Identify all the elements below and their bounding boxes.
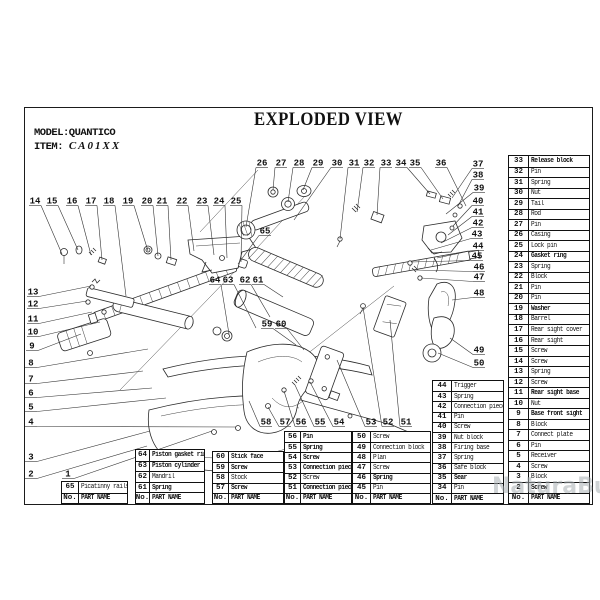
table-row: 7Connect plate — [509, 429, 589, 440]
table-row: 51Connection piece — [285, 483, 351, 493]
part-name: Piston gasket ring — [150, 451, 204, 459]
part-name: Stick face — [229, 453, 283, 461]
part-number: 15 — [509, 346, 529, 356]
table-row: 10Nut — [509, 398, 589, 409]
part-name: Screw — [301, 454, 351, 462]
table-row: 52Screw — [285, 473, 351, 483]
table-row: 49Connection block — [353, 442, 430, 452]
part-number: 42 — [433, 402, 452, 411]
table-footer-row: No.PART NAME — [285, 493, 351, 503]
part-number: 13 — [509, 367, 529, 377]
part-number: No. — [285, 494, 301, 503]
part-name: Trigger — [452, 382, 503, 390]
part-name: Pin — [529, 221, 589, 229]
part-number: 59 — [213, 463, 229, 472]
part-number: 46 — [353, 474, 371, 483]
table-row: 38Firing base — [433, 442, 503, 452]
part-number: No. — [433, 494, 452, 503]
part-number: 62 — [136, 472, 150, 482]
part-name: Connection block — [371, 444, 430, 452]
part-number: 45 — [353, 484, 371, 493]
part-name: Stock — [229, 474, 283, 482]
parts-tables: 65Picatinny railsNo.PART NAME64Piston ga… — [0, 0, 600, 600]
part-number: 44 — [433, 381, 452, 391]
part-name: Spring — [371, 474, 430, 482]
part-name: Barrel — [529, 315, 589, 323]
part-name: Connection piece — [452, 403, 503, 411]
part-name: Rear sight cover — [529, 326, 589, 334]
part-name: Plan — [371, 454, 430, 462]
part-name: Spring — [150, 484, 204, 492]
table-row: 41Pin — [433, 412, 503, 422]
part-name: Screw — [371, 433, 430, 441]
part-name: Rear sight — [529, 337, 589, 345]
table-row: 63Piston cylinder — [136, 461, 204, 472]
part-number: 6 — [509, 441, 529, 451]
part-number: 33 — [509, 156, 529, 167]
table-row: 57Screw — [213, 483, 283, 493]
table-row: 58Stock — [213, 472, 283, 482]
table-row: 22Block — [509, 272, 589, 283]
part-number: 4 — [509, 462, 529, 472]
part-number: 5 — [509, 451, 529, 461]
table-row: 23Spring — [509, 261, 589, 272]
part-number: 22 — [509, 273, 529, 283]
part-number: 28 — [509, 210, 529, 220]
part-number: 61 — [136, 483, 150, 493]
part-number: 20 — [509, 294, 529, 304]
part-name: Firing base — [452, 444, 503, 452]
table-row: 45Pin — [353, 483, 430, 493]
part-name: Pin — [452, 413, 503, 421]
part-name: Safe block — [452, 464, 503, 472]
parts-table-t65: 65Picatinny railsNo.PART NAME — [61, 481, 128, 504]
part-number: No. — [62, 494, 79, 504]
part-number: 23 — [509, 262, 529, 272]
part-name: Rear sight base — [529, 389, 589, 397]
part-number: 57 — [213, 484, 229, 493]
part-number: 7 — [509, 430, 529, 440]
part-name: Spring — [301, 444, 351, 452]
part-number: 31 — [509, 178, 529, 188]
part-name: Spring — [452, 393, 503, 401]
table-row: 60Stick face — [213, 452, 283, 462]
table-row: 54Screw — [285, 452, 351, 462]
part-number: 43 — [433, 392, 452, 401]
part-number: 17 — [509, 325, 529, 335]
table-row: 4Screw — [509, 461, 589, 472]
part-number: 56 — [285, 432, 301, 442]
part-number: 9 — [509, 409, 529, 419]
table-row: 44Trigger — [433, 381, 503, 391]
parts-table-t50: 50Screw49Connection block48Plan47Screw46… — [352, 431, 431, 504]
part-number: 48 — [353, 453, 371, 462]
table-row: 17Rear sight cover — [509, 324, 589, 335]
parts-table-t60: 60Stick face59Screw58Stock57ScrewNo.PART… — [212, 451, 284, 504]
part-number: 12 — [509, 378, 529, 388]
table-row: 61Spring — [136, 482, 204, 493]
part-number: 11 — [509, 388, 529, 398]
part-name: Spring — [452, 454, 503, 462]
table-row: 42Connection piece — [433, 401, 503, 411]
part-name: Nut block — [452, 434, 503, 442]
parts-table-t64: 64Piston gasket ring63Piston cylinder62M… — [135, 449, 205, 504]
part-name: Casing — [529, 231, 589, 239]
part-name: Block — [529, 273, 589, 281]
table-row: 59Screw — [213, 462, 283, 472]
part-name: Rod — [529, 210, 589, 218]
table-footer-row: No.PART NAME — [213, 493, 283, 503]
table-row: 47Screw — [353, 462, 430, 472]
table-row: 25Lock pin — [509, 240, 589, 251]
part-name: Screw — [301, 474, 351, 482]
part-name: PART NAME — [301, 494, 351, 502]
table-row: 16Rear sight — [509, 335, 589, 346]
part-number: 52 — [285, 474, 301, 483]
part-name: PART NAME — [229, 494, 283, 502]
part-number: 63 — [136, 462, 150, 472]
part-name: Pin — [529, 294, 589, 302]
part-name: Mandril — [150, 473, 204, 481]
part-number: 64 — [136, 450, 150, 461]
part-number: No. — [136, 493, 150, 503]
part-name: Screw — [529, 347, 589, 355]
table-row: 36Safe block — [433, 463, 503, 473]
part-number: No. — [353, 494, 371, 503]
part-name: Nut — [529, 189, 589, 197]
table-footer-row: No.PART NAME — [353, 493, 430, 503]
part-name: PART NAME — [150, 494, 204, 502]
part-number: 35 — [433, 474, 452, 483]
table-row: 33Release block — [509, 156, 589, 167]
part-number: 34 — [433, 484, 452, 493]
part-number: 25 — [509, 241, 529, 251]
part-number: 29 — [509, 199, 529, 209]
part-name: Spring — [529, 368, 589, 376]
part-name: PART NAME — [79, 494, 127, 502]
table-row: 32Pin — [509, 167, 589, 178]
table-footer-row: No.PART NAME — [136, 492, 204, 503]
part-name: Release block — [529, 157, 589, 165]
table-row: 21Pin — [509, 282, 589, 293]
table-row: 65Picatinny rails — [62, 482, 127, 493]
table-row: 29Tail — [509, 198, 589, 209]
part-name: Washer — [529, 305, 589, 313]
part-number: 51 — [285, 484, 301, 493]
table-row: 9Base front sight — [509, 408, 589, 419]
table-row: 27Pin — [509, 219, 589, 230]
part-number: 49 — [353, 443, 371, 452]
part-name: Base front sight — [529, 410, 589, 418]
table-row: 64Piston gasket ring — [136, 450, 204, 461]
table-row: 20Pin — [509, 293, 589, 304]
part-number: 55 — [285, 443, 301, 452]
parts-table-t33: 33Release block32Pin31Spring30Nut29Tail2… — [508, 155, 590, 504]
part-number: 50 — [353, 432, 371, 442]
table-row: 46Spring — [353, 473, 430, 483]
part-number: 41 — [433, 413, 452, 422]
table-row: 19Washer — [509, 303, 589, 314]
part-name: Pin — [301, 433, 351, 441]
part-name: Picatinny rails — [79, 483, 127, 491]
table-row: 28Rod — [509, 209, 589, 220]
table-row: 31Spring — [509, 177, 589, 188]
part-name: Receiver — [529, 452, 589, 460]
part-name: Screw — [529, 379, 589, 387]
part-number: 47 — [353, 463, 371, 472]
part-number: 39 — [433, 433, 452, 442]
part-name: Screw — [229, 484, 283, 492]
table-row: 11Rear sight base — [509, 387, 589, 398]
part-name: Screw — [371, 464, 430, 472]
table-row: 37Spring — [433, 452, 503, 462]
part-name: Block — [529, 421, 589, 429]
part-number: 16 — [509, 336, 529, 346]
part-name: Pin — [529, 442, 589, 450]
table-row: 30Nut — [509, 188, 589, 199]
part-name: Pin — [529, 284, 589, 292]
part-name: Tail — [529, 200, 589, 208]
part-number: 14 — [509, 357, 529, 367]
table-row: 8Block — [509, 419, 589, 430]
part-number: 36 — [433, 464, 452, 473]
table-footer-row: No.PART NAME — [62, 493, 127, 504]
part-name: Gasket ring — [529, 252, 589, 260]
part-number: 38 — [433, 443, 452, 452]
part-name: PART NAME — [371, 494, 430, 502]
part-name: Connection piece — [301, 484, 351, 492]
part-number: 40 — [433, 423, 452, 432]
table-row: 14Screw — [509, 356, 589, 367]
table-row: 43Spring — [433, 391, 503, 401]
part-name: Piston cylinder — [150, 462, 204, 470]
exploded-view-sheet: MODEL:QUANTICO ITEM: CA01XX EXPLODED VIE… — [0, 0, 600, 600]
part-name: Screw — [229, 464, 283, 472]
table-row: 48Plan — [353, 452, 430, 462]
part-number: 53 — [285, 463, 301, 472]
table-row: 5Receiver — [509, 450, 589, 461]
table-row: 40Screw — [433, 422, 503, 432]
part-name: Spring — [529, 179, 589, 187]
part-number: No. — [213, 494, 229, 503]
table-row: 26Casing — [509, 230, 589, 241]
part-number: 26 — [509, 231, 529, 241]
parts-table-t56: 56Pin55Spring54Screw53Connection piece52… — [284, 431, 352, 504]
part-name: Nut — [529, 400, 589, 408]
part-number: 8 — [509, 420, 529, 430]
table-row: 55Spring — [285, 442, 351, 452]
table-row: 56Pin — [285, 432, 351, 442]
part-number: 30 — [509, 189, 529, 199]
table-row: 18Barrel — [509, 314, 589, 325]
part-number: 58 — [213, 473, 229, 482]
part-number: 10 — [509, 399, 529, 409]
part-name: Screw — [529, 358, 589, 366]
part-number: 24 — [509, 252, 529, 262]
part-number: 18 — [509, 315, 529, 325]
watermark: NaturaBuy — [492, 474, 600, 499]
part-name: Screw — [529, 463, 589, 471]
part-number: 21 — [509, 283, 529, 293]
part-name: Connection piece — [301, 464, 351, 472]
table-row: 39Nut block — [433, 432, 503, 442]
part-name: Screw — [452, 423, 503, 431]
table-row: 15Screw — [509, 345, 589, 356]
table-row: 13Spring — [509, 366, 589, 377]
table-row: 50Screw — [353, 432, 430, 442]
part-number: 65 — [62, 482, 79, 493]
part-number: 37 — [433, 453, 452, 462]
table-row: 53Connection piece — [285, 462, 351, 472]
part-number: 19 — [509, 304, 529, 314]
part-name: Pin — [371, 484, 430, 492]
table-row: 6Pin — [509, 440, 589, 451]
table-row: 24Gasket ring — [509, 251, 589, 262]
table-row: 62Mandril — [136, 471, 204, 482]
part-number: 27 — [509, 220, 529, 230]
table-row: 12Screw — [509, 377, 589, 388]
part-name: Spring — [529, 263, 589, 271]
part-name: Lock pin — [529, 242, 589, 250]
part-number: 60 — [213, 452, 229, 462]
part-number: 54 — [285, 453, 301, 462]
part-name: Connect plate — [529, 431, 589, 439]
part-name: Pin — [529, 168, 589, 176]
part-number: 32 — [509, 168, 529, 178]
